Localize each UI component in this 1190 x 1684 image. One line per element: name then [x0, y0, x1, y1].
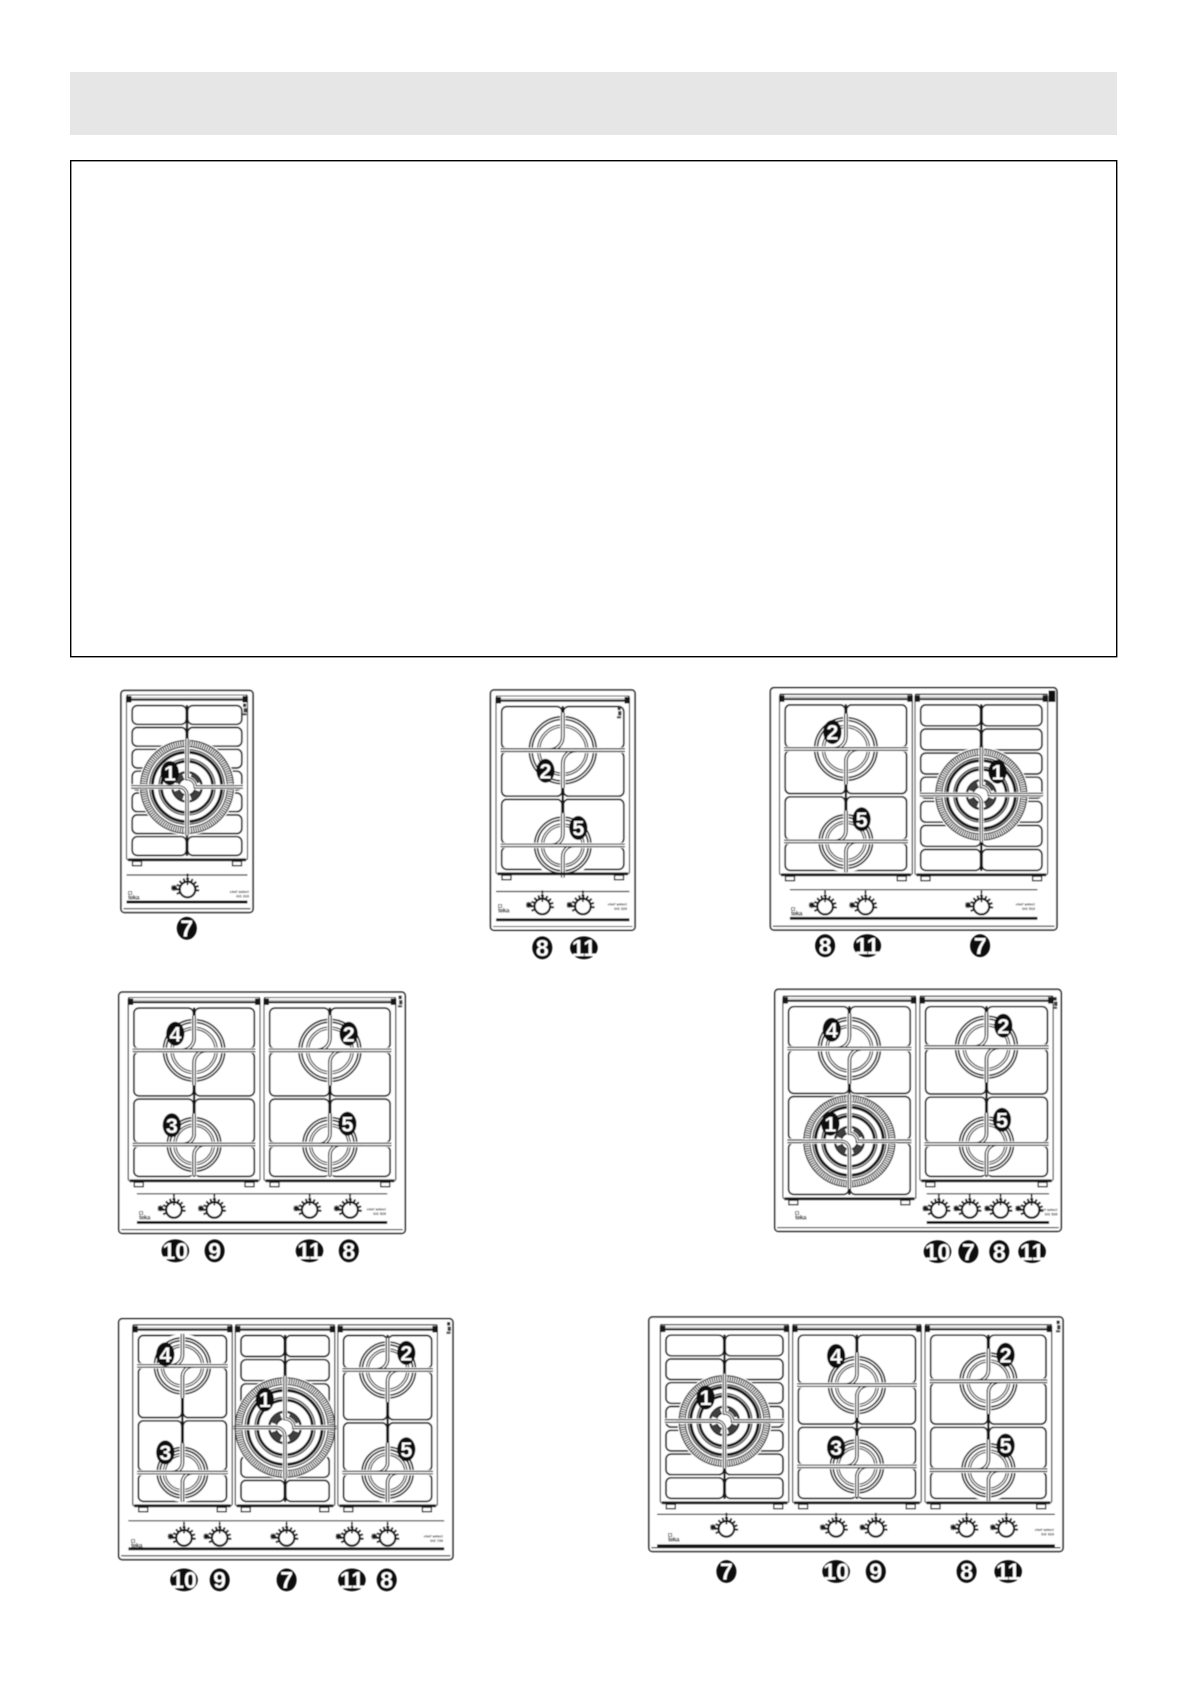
svg-text:5: 5 — [1000, 1434, 1012, 1458]
svg-text:chef select: chef select — [367, 1208, 387, 1212]
svg-text:5: 5 — [341, 1112, 353, 1136]
svg-text:GG 520: GG 520 — [373, 1212, 386, 1216]
svg-text:7: 7 — [280, 1567, 293, 1593]
svg-text:11: 11 — [572, 935, 597, 961]
svg-text:GG 310: GG 310 — [236, 895, 249, 899]
svg-text:4: 4 — [826, 1018, 838, 1042]
svg-text:8: 8 — [960, 1559, 973, 1585]
svg-text:10: 10 — [925, 1239, 951, 1265]
svg-text:chef select: chef select — [230, 890, 250, 894]
svg-text:7: 7 — [962, 1239, 975, 1265]
svg-text:GG 730: GG 730 — [430, 1539, 443, 1543]
svg-text:7: 7 — [720, 1559, 733, 1585]
svg-text:5: 5 — [400, 1438, 412, 1462]
svg-text:9: 9 — [208, 1238, 221, 1264]
svg-text:2: 2 — [343, 1022, 355, 1046]
svg-text:9: 9 — [213, 1567, 226, 1593]
svg-text:1: 1 — [259, 1388, 271, 1412]
svg-text:5: 5 — [572, 817, 584, 841]
svg-text:2: 2 — [540, 759, 552, 783]
svg-text:chef select: chef select — [1016, 903, 1036, 907]
svg-text:11: 11 — [297, 1238, 322, 1264]
svg-text:7: 7 — [974, 933, 987, 959]
svg-text:1: 1 — [992, 760, 1004, 784]
svg-text:11: 11 — [855, 933, 880, 959]
svg-text:4: 4 — [159, 1343, 171, 1367]
svg-text:9: 9 — [869, 1559, 882, 1585]
svg-text:chef select: chef select — [608, 903, 628, 907]
svg-text:GG 910: GG 910 — [1041, 1533, 1054, 1537]
svg-text:2: 2 — [1000, 1343, 1012, 1367]
svg-text:8: 8 — [536, 935, 549, 961]
svg-text:chef select: chef select — [424, 1535, 444, 1539]
svg-text:2: 2 — [997, 1014, 1009, 1038]
svg-text:chef select: chef select — [1035, 1528, 1055, 1532]
svg-text:7: 7 — [180, 916, 193, 942]
svg-text:10: 10 — [163, 1238, 189, 1264]
svg-text:10: 10 — [823, 1559, 849, 1585]
svg-text:5: 5 — [856, 808, 868, 832]
svg-text:teka: teka — [795, 1215, 807, 1222]
svg-text:3: 3 — [166, 1114, 178, 1138]
svg-text:5: 5 — [996, 1108, 1008, 1132]
svg-text:3: 3 — [159, 1441, 171, 1465]
svg-text:teka: teka — [128, 895, 140, 902]
svg-text:11: 11 — [340, 1567, 365, 1593]
svg-text:8: 8 — [380, 1567, 393, 1593]
svg-text:teka: teka — [498, 908, 510, 915]
svg-text:4: 4 — [169, 1022, 181, 1046]
svg-text:11: 11 — [996, 1559, 1021, 1585]
svg-text:1: 1 — [824, 1112, 836, 1136]
svg-text:2: 2 — [400, 1342, 412, 1366]
svg-text:1: 1 — [700, 1386, 712, 1410]
svg-text:teka: teka — [791, 911, 803, 918]
svg-text:3: 3 — [830, 1436, 842, 1460]
svg-text:chef select: chef select — [1038, 1208, 1058, 1212]
svg-text:11: 11 — [1020, 1239, 1045, 1265]
svg-text:8: 8 — [993, 1239, 1006, 1265]
svg-text:GG 510: GG 510 — [1022, 907, 1035, 911]
svg-text:GG 530: GG 530 — [1045, 1213, 1058, 1217]
svg-text:teka: teka — [139, 1215, 151, 1222]
svg-text:1: 1 — [164, 762, 176, 786]
svg-text:8: 8 — [819, 933, 832, 959]
svg-text:teka: teka — [668, 1537, 680, 1544]
svg-text:4: 4 — [830, 1345, 842, 1369]
svg-text:8: 8 — [342, 1238, 355, 1264]
svg-text:2: 2 — [826, 721, 838, 745]
svg-text:GG 320: GG 320 — [614, 907, 627, 911]
svg-text:teka: teka — [131, 1543, 143, 1550]
svg-text:10: 10 — [171, 1567, 197, 1593]
